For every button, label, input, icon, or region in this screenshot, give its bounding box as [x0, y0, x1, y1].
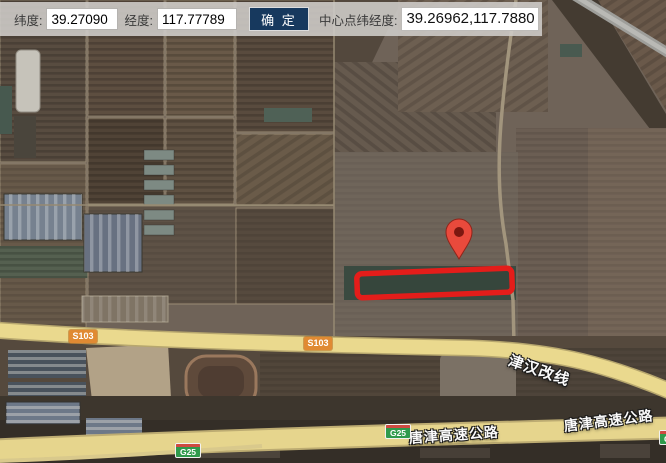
- g25-number: G25: [660, 434, 666, 444]
- g25-shield-badge: G25: [175, 443, 201, 458]
- latitude-input[interactable]: [46, 8, 118, 30]
- center-coords-value: 39.26962,117.7880: [401, 7, 539, 31]
- g25-number: G25: [176, 447, 200, 457]
- latitude-label: 纬度:: [14, 10, 42, 29]
- g25-shield-badge: G25: [659, 430, 666, 445]
- longitude-label: 经度:: [124, 10, 152, 29]
- coordinate-toolbar: 纬度: 经度: 确 定 中心点纬经度: 39.26962,117.7880: [0, 2, 542, 36]
- s103-shield-badge: S103: [69, 330, 97, 343]
- map-application-window: S103 S103 G25 G25 G25 津汉改线 唐津高速公路 唐津高速公路…: [0, 0, 666, 463]
- confirm-button[interactable]: 确 定: [249, 7, 309, 31]
- s103-shield-badge: S103: [304, 337, 332, 350]
- satellite-map-canvas[interactable]: [0, 0, 666, 463]
- highlight-rectangle: [357, 268, 513, 298]
- longitude-input[interactable]: [157, 8, 237, 30]
- g25-number: G25: [386, 428, 410, 438]
- center-coords-label: 中心点纬经度:: [319, 10, 397, 29]
- g25-shield-badge: G25: [385, 424, 411, 439]
